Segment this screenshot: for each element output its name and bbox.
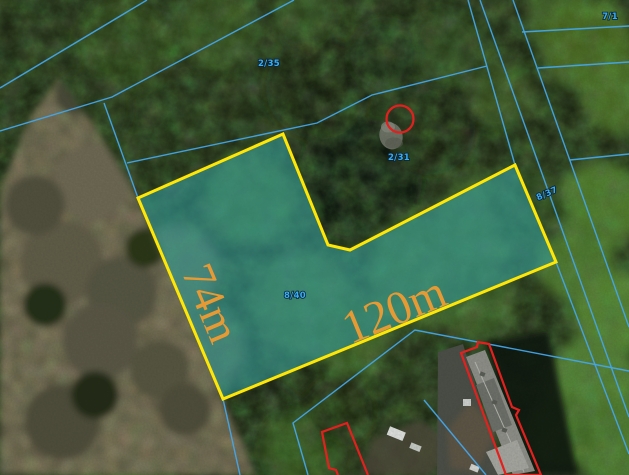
aerial-map-view[interactable]: 2/35 2/31 7/1 8/37 8/40 74m 120m [0, 0, 629, 475]
parcel-number-label: 2/35 [258, 59, 280, 69]
parcel-number-label: 2/31 [388, 153, 410, 163]
parcel-number-label: 8/40 [284, 291, 306, 301]
parcel-number-label: 7/1 [602, 12, 618, 22]
aerial-map-canvas[interactable]: 2/35 2/31 7/1 8/37 8/40 74m 120m [0, 0, 629, 475]
